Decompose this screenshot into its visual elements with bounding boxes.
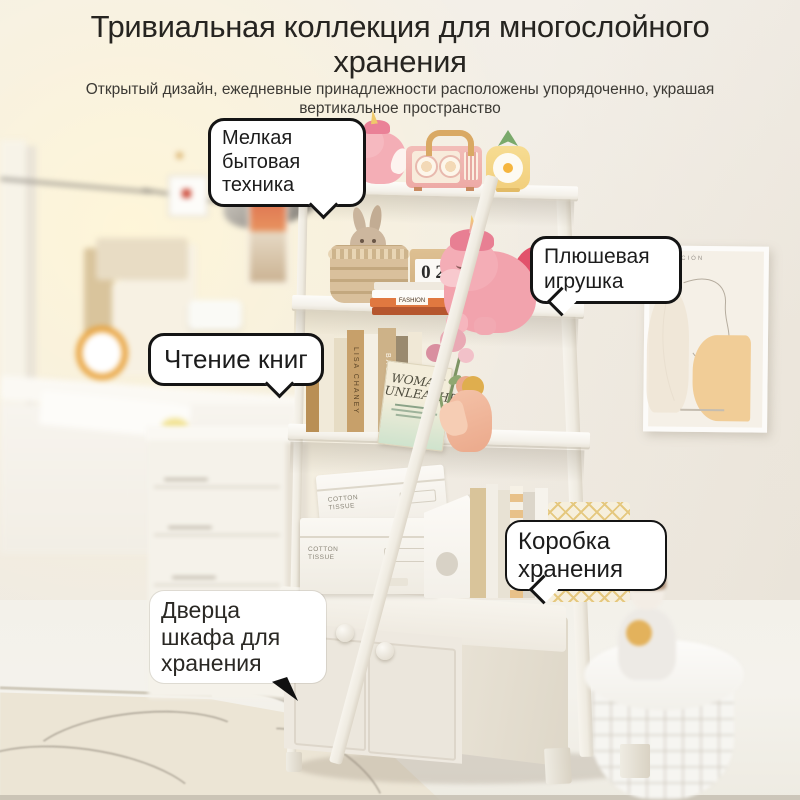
second-shelf-items: 0 2 August FASHION [328,205,558,305]
tissue-box-top-label: COTTON TISSUE [328,493,375,514]
tissue-box-bottom-label: COTTON TISSUE [308,546,354,563]
notebook-spine [486,484,498,598]
top-shelf-items [340,118,540,190]
drawer-seam [154,534,280,536]
mini-fan-leaf [498,130,518,146]
book-spine [334,338,347,432]
toy-radio-grill [464,152,478,180]
mini-fan-base [496,188,520,192]
alarm-clock [76,326,128,380]
wall-frame [168,175,208,217]
cabinet-rear-foot [544,747,572,784]
callout-small-appliances: Мелкая бытовая техника [208,118,366,207]
drawer-handle [168,526,212,529]
notebook-spine [470,488,486,598]
stacked-book [372,307,454,315]
bunny-eye [360,239,364,243]
toy-radio-foot [466,187,474,191]
mini-fan-hub [503,163,513,173]
page-subtitle: Открытый дизайн, ежедневные принадлежнос… [0,80,800,119]
callout-reading-books: Чтение книг [148,333,324,386]
cabinet-knob-right [376,642,394,660]
stacked-book [372,290,452,298]
toy-radio-handle [426,130,474,156]
page-title: Тривиальная коллекция для многослойного … [0,9,800,79]
desk-gadget [188,300,242,330]
page-subtitle-text: Открытый дизайн, ежедневные принадлежнос… [55,80,745,119]
toy-radio-foot [414,187,422,191]
figurine-ball [626,620,652,646]
poster-caption-line [680,409,724,411]
peony-flower [458,348,474,363]
wall-hook [176,152,183,159]
drawer-seam [154,486,280,488]
stacked-book-fashion: FASHION [370,298,454,307]
cabinet-foot [286,752,302,772]
stacked-book-title: FASHION [396,298,428,305]
stacked-book [374,282,450,290]
drawer-handle [172,576,216,579]
callout-storage-box: Коробка хранения [505,520,667,591]
bunny-eye [372,239,376,243]
callout-small-appliances-label: Мелкая бытовая техника [222,127,300,196]
drawer-seam [154,584,280,586]
diagonal-leg-foot [620,744,650,778]
basket-rim [328,249,410,259]
page-title-text: Тривиальная коллекция для многослойного … [70,9,730,79]
desk-papers [96,238,188,280]
toy-radio-speaker [415,155,438,178]
cabinet-knob-left [336,624,354,642]
callout-plush-toy-label: Плюшевая игрушка [544,245,650,293]
figurine-body [618,608,676,680]
callout-plush-toy: Плюшевая игрушка [530,236,682,304]
poster-blob-pale [646,290,689,412]
tissue-box-bottom: COTTON TISSUE [300,518,438,594]
callout-reading-books-label: Чтение книг [164,344,308,374]
book-spine-lisa-chaney: LISA CHANEY [347,330,364,432]
drawer-handle [164,478,208,481]
product-showcase-image: CTUACIÓN [0,0,800,800]
callout-storage-box-label: Коробка хранения [518,528,623,583]
book-spine [364,334,378,432]
callout-cabinet-door-label: Дверца шкафа для хранения [161,597,280,676]
toy-radio-speaker [439,155,462,178]
callout-cabinet-door: Дверца шкафа для хранения [150,591,326,683]
